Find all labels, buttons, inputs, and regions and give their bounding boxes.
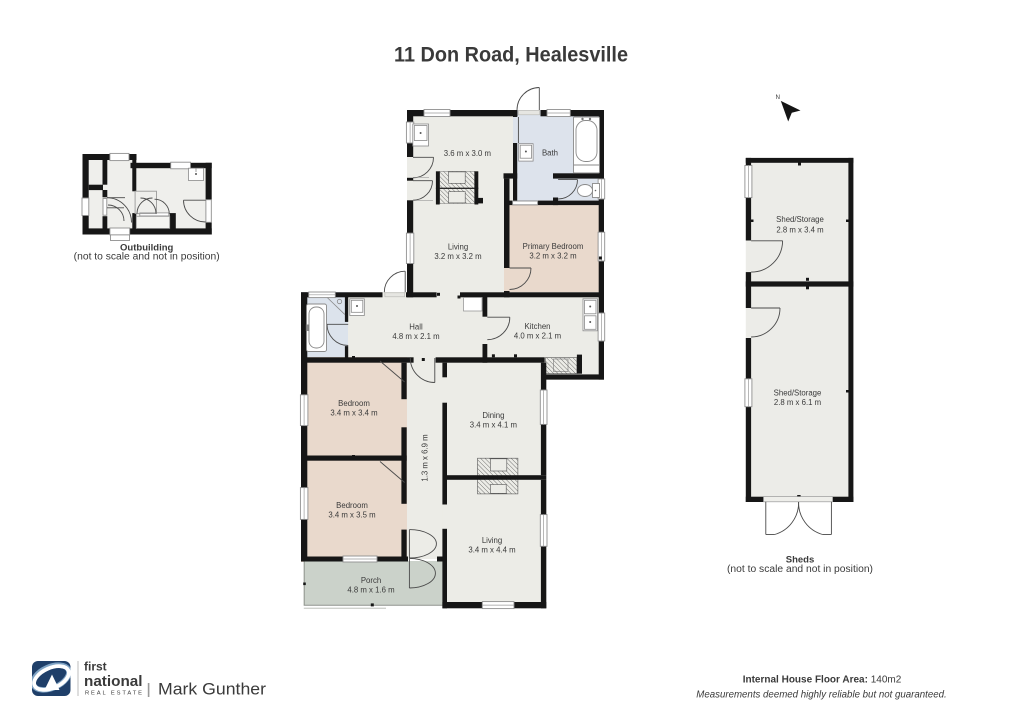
svg-text:Bedroom: Bedroom: [338, 399, 370, 408]
svg-text:Bedroom: Bedroom: [336, 501, 368, 510]
svg-text:(not to scale and not in posit: (not to scale and not in position): [74, 251, 220, 262]
svg-text:4.0 m x 2.1 m: 4.0 m x 2.1 m: [514, 332, 561, 341]
svg-text:Measurements deemed highly rel: Measurements deemed highly reliable but …: [696, 690, 946, 701]
svg-text:Dining: Dining: [482, 411, 504, 420]
svg-text:11 Don Road, Healesville: 11 Don Road, Healesville: [394, 43, 628, 67]
svg-text:3.4 m x 3.5 m: 3.4 m x 3.5 m: [328, 511, 375, 520]
svg-text:Porch: Porch: [361, 576, 381, 585]
svg-text:3.4 m x 4.4 m: 3.4 m x 4.4 m: [468, 546, 515, 555]
svg-text:3.4 m x 3.4 m: 3.4 m x 3.4 m: [330, 409, 377, 418]
svg-text:Hall: Hall: [409, 323, 423, 332]
svg-text:REAL ESTATE: REAL ESTATE: [85, 690, 142, 696]
svg-text:national: national: [84, 674, 143, 690]
svg-text:3.4 m x 4.1 m: 3.4 m x 4.1 m: [470, 421, 517, 430]
svg-text:(not to scale and not in posit: (not to scale and not in position): [727, 564, 873, 575]
svg-text:Shed/Storage: Shed/Storage: [776, 215, 824, 224]
svg-text:4.8 m x 2.1 m: 4.8 m x 2.1 m: [392, 332, 439, 341]
svg-text:Mark Gunther: Mark Gunther: [158, 680, 266, 699]
svg-text:Living: Living: [482, 536, 502, 545]
svg-text:3.6 m x 3.0 m: 3.6 m x 3.0 m: [444, 149, 491, 158]
svg-text:4.8 m x 1.6 m: 4.8 m x 1.6 m: [347, 586, 394, 595]
svg-text:1.3 m x 6.9 m: 1.3 m x 6.9 m: [421, 434, 430, 481]
svg-text:N: N: [775, 94, 779, 101]
svg-text:Internal House Floor Area: 140: Internal House Floor Area: 140m2: [743, 675, 902, 686]
svg-text:Bath: Bath: [542, 149, 558, 158]
svg-text:Kitchen: Kitchen: [524, 322, 550, 331]
svg-text:Shed/Storage: Shed/Storage: [774, 389, 822, 398]
svg-text:3.2 m x 3.2 m: 3.2 m x 3.2 m: [434, 252, 481, 261]
svg-text:first: first: [84, 660, 107, 674]
svg-text:2.8 m x 6.1 m: 2.8 m x 6.1 m: [774, 398, 821, 407]
svg-text:Living: Living: [448, 243, 468, 252]
svg-text:2.8 m x 3.4 m: 2.8 m x 3.4 m: [776, 226, 823, 235]
svg-text:Primary Bedroom: Primary Bedroom: [523, 242, 584, 251]
svg-text:3.2 m x 3.2 m: 3.2 m x 3.2 m: [529, 252, 576, 261]
